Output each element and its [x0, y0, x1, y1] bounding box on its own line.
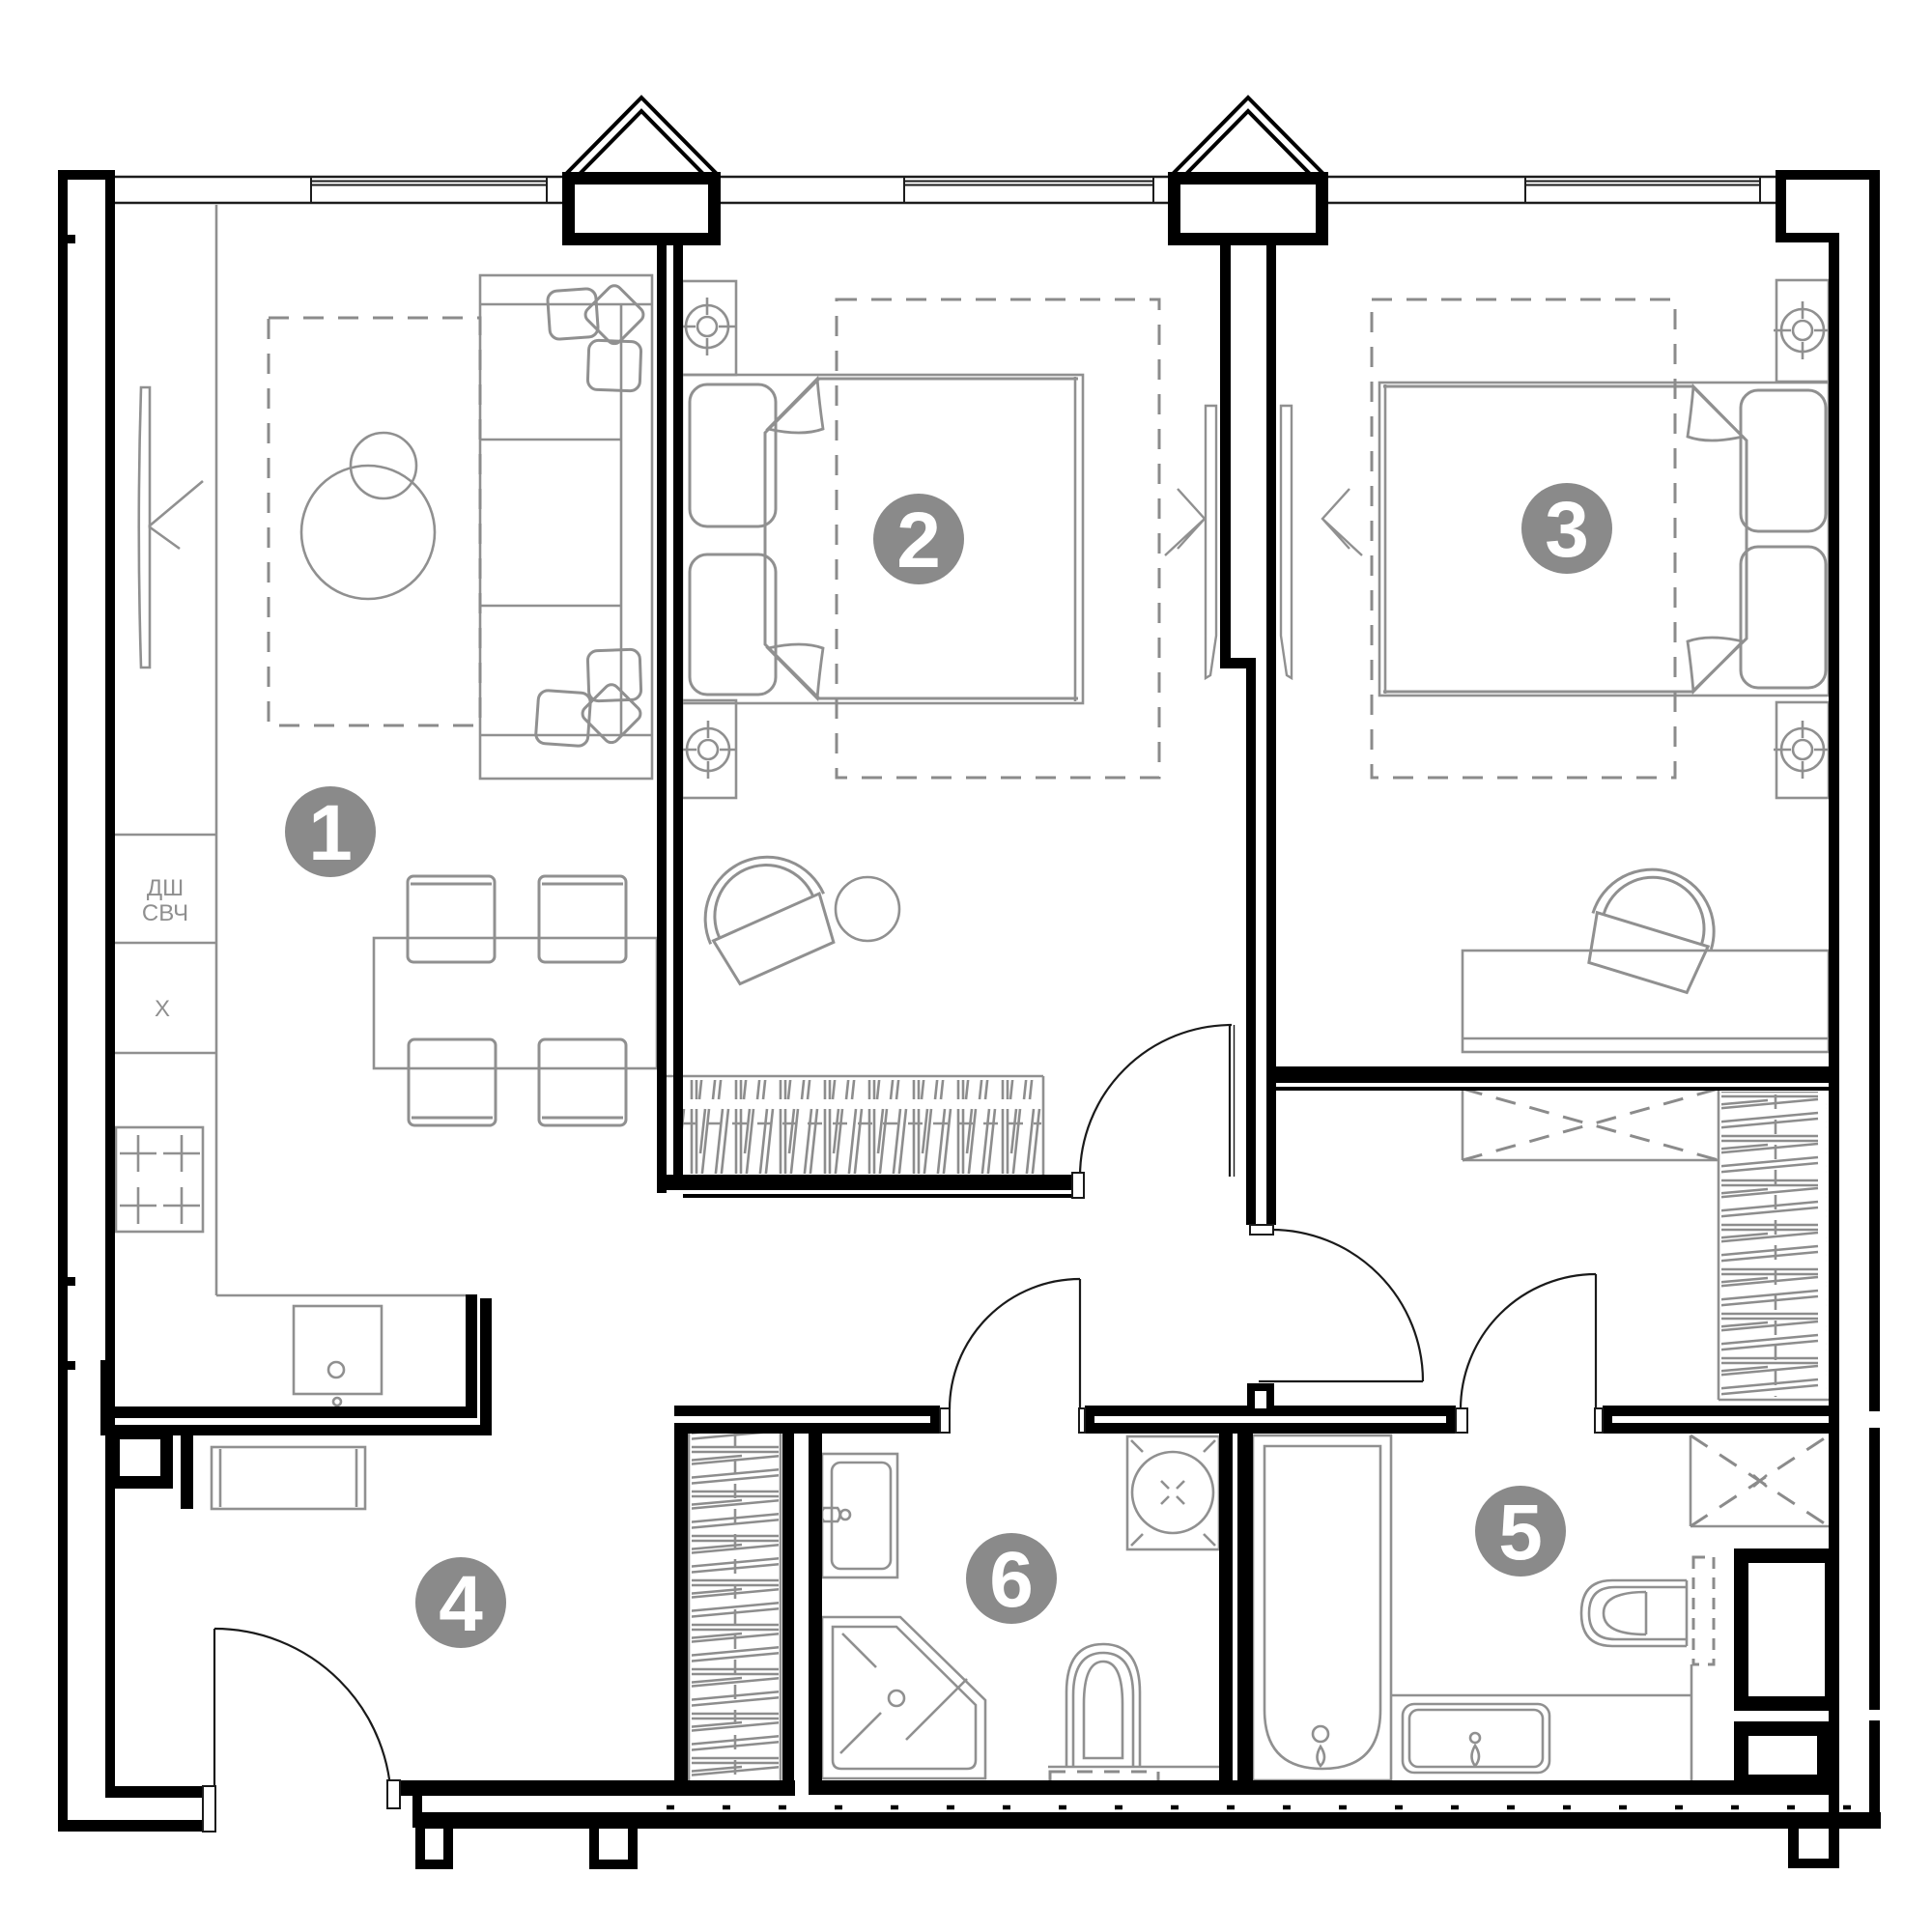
svg-text:СВЧ: СВЧ — [142, 900, 188, 926]
svg-text:2: 2 — [896, 497, 941, 584]
svg-text:6: 6 — [989, 1536, 1034, 1624]
svg-text:X: X — [155, 996, 170, 1022]
svg-text:ДШ: ДШ — [147, 875, 184, 901]
svg-text:1: 1 — [308, 789, 353, 877]
svg-text:4: 4 — [439, 1560, 483, 1648]
svg-text:3: 3 — [1545, 486, 1589, 574]
svg-text:5: 5 — [1498, 1489, 1543, 1577]
